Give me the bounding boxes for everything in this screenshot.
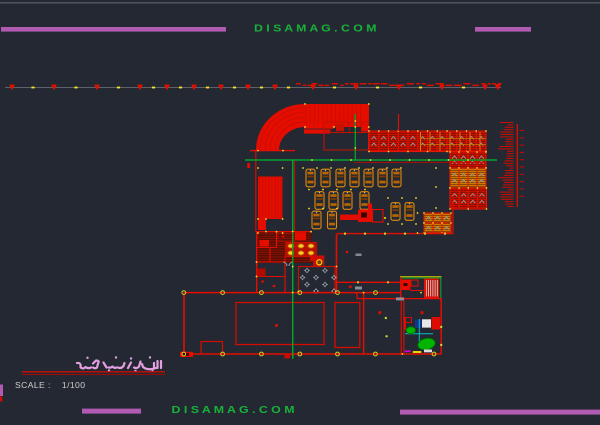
svg-text:D I S A M A G . C O M: D I S A M A G . C O M <box>172 405 295 416</box>
svg-text:SCALE : 1/100: SCALE : 1/100 <box>15 380 85 390</box>
svg-text:D I S A M A G . C O M: D I S A M A G . C O M <box>254 23 377 34</box>
